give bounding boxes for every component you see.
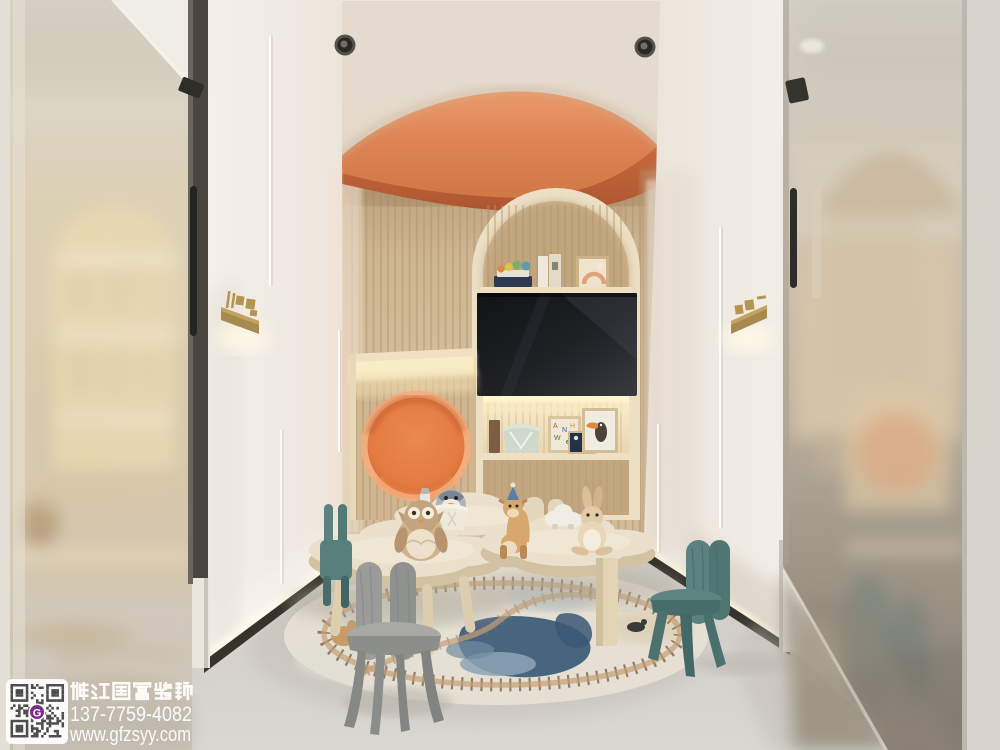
svg-text:A: A bbox=[553, 423, 558, 430]
svg-text:G: G bbox=[33, 708, 42, 720]
svg-text:137-7759-4082: 137-7759-4082 bbox=[70, 702, 192, 726]
svg-text:N: N bbox=[562, 427, 567, 434]
svg-text:www.gfzsyy.com: www.gfzsyy.com bbox=[69, 724, 191, 746]
svg-text:W: W bbox=[554, 435, 561, 442]
svg-text:H: H bbox=[570, 423, 575, 430]
